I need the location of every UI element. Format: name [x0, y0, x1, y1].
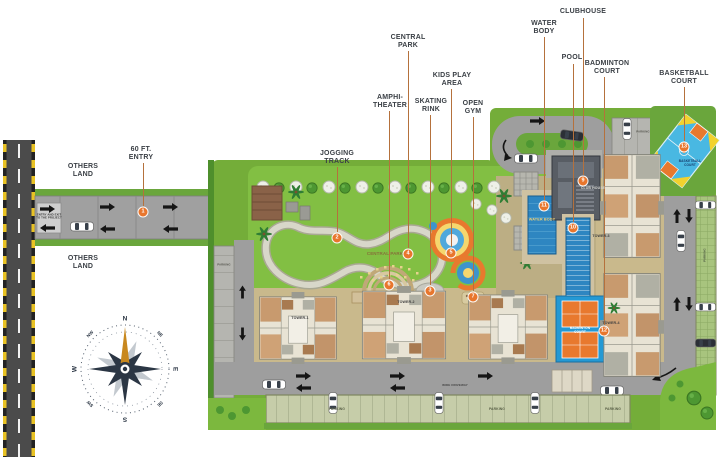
car-icon [263, 380, 286, 389]
car-icon [329, 393, 337, 414]
clubhouse-stairs [576, 186, 594, 210]
car-icon [623, 119, 631, 140]
tower-east-2-block [600, 274, 664, 377]
car-icon [531, 393, 539, 414]
tower-east-1-block [600, 155, 664, 258]
main-road [3, 140, 35, 457]
car-icon [601, 386, 624, 395]
compass-rose [81, 325, 169, 413]
cascade-pool [566, 218, 590, 298]
tower-2-block [362, 286, 445, 364]
gatehouse [300, 206, 310, 220]
car-icon [695, 201, 715, 209]
car-icon [71, 222, 94, 231]
badminton-court [556, 296, 604, 362]
gatehouse [286, 202, 298, 212]
pergola [252, 186, 282, 220]
car-icon [677, 231, 685, 252]
car-icon [515, 154, 538, 163]
car-icon [695, 303, 715, 311]
tower-1-block [260, 292, 337, 364]
car-icon [435, 393, 443, 414]
tower-3-block [469, 290, 548, 364]
site-plan: 60 FT. ENTRY1JOGGING TRACK2CENTRAL PARK4… [0, 0, 720, 457]
car-icon [695, 339, 715, 347]
site-plan-graphic [0, 0, 720, 457]
